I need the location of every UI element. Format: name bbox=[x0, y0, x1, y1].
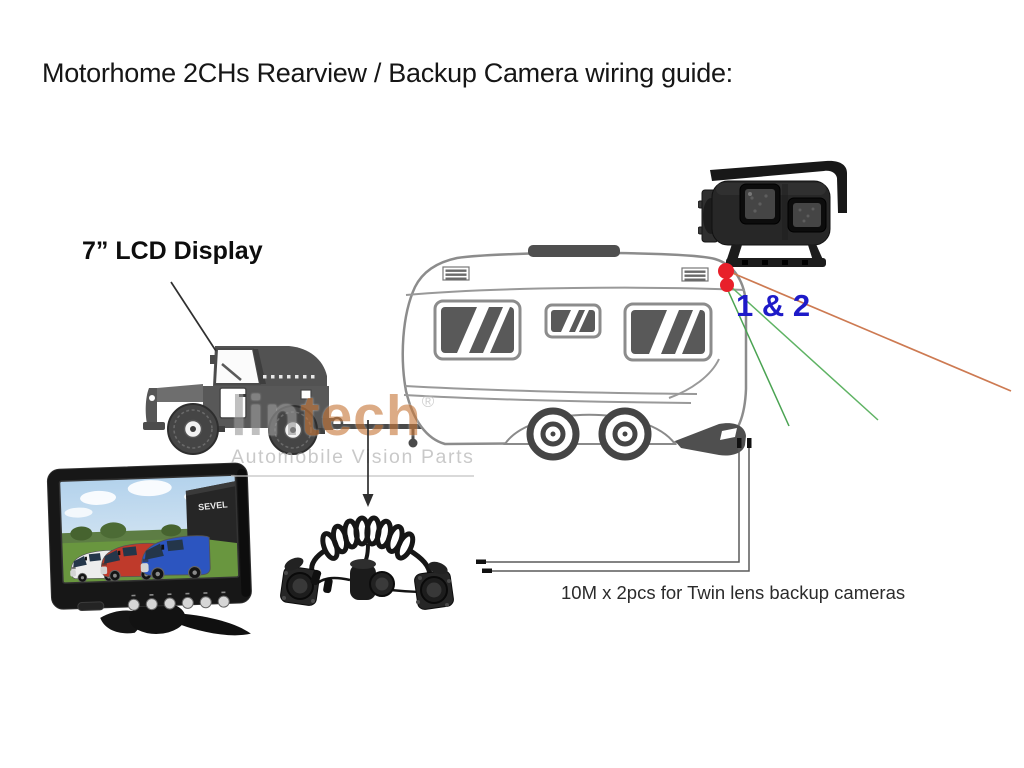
cable-caption: 10M x 2pcs for Twin lens backup cameras bbox=[561, 582, 905, 604]
lcd-display-label: 7” LCD Display bbox=[82, 237, 263, 266]
wiring-guide-diagram: Motorhome 2CHs Rearview / Backup Camera … bbox=[0, 0, 1024, 768]
channels-label: 1 & 2 bbox=[736, 288, 810, 324]
camera-cable-lines bbox=[485, 448, 749, 571]
monitor-screen-photo: SEVEL bbox=[59, 475, 238, 583]
trailer-cable-icon bbox=[272, 506, 472, 618]
lcd-monitor-icon: SEVEL bbox=[37, 454, 271, 652]
backup-camera-icon bbox=[698, 154, 860, 272]
page-title: Motorhome 2CHs Rearview / Backup Camera … bbox=[42, 58, 733, 89]
caravan-icon bbox=[393, 243, 768, 465]
